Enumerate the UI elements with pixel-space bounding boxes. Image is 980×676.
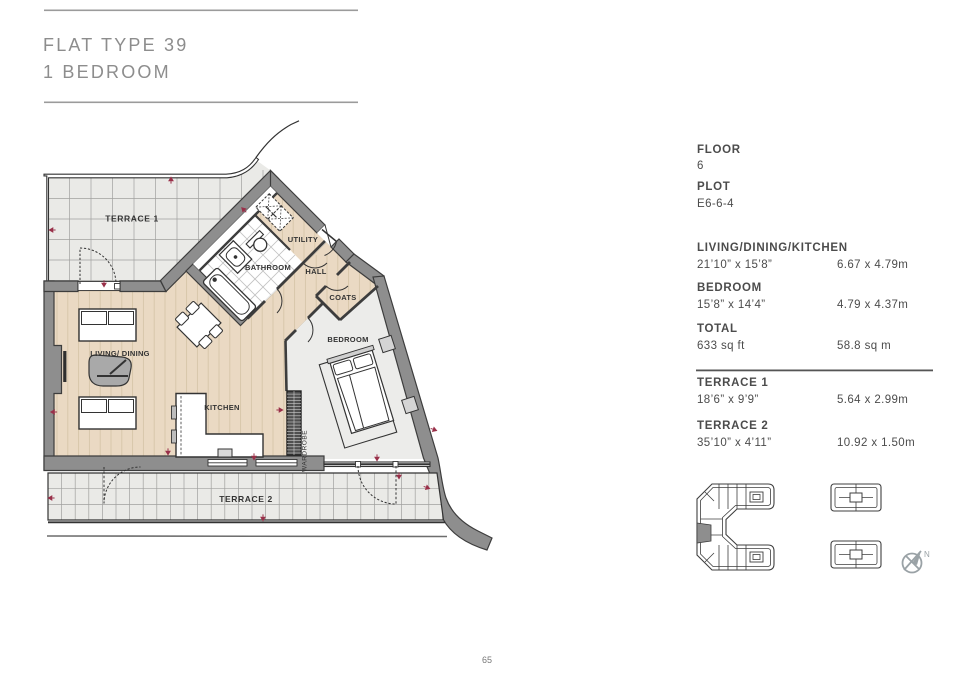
svg-text:KITCHEN: KITCHEN [204,403,239,412]
svg-text:BEDROOM: BEDROOM [697,282,762,294]
svg-text:TERRACE 2: TERRACE 2 [697,420,768,432]
svg-text:TERRACE 2: TERRACE 2 [219,494,273,504]
svg-text:LIVING/DINING/KITCHEN: LIVING/DINING/KITCHEN [697,242,848,254]
svg-text:WARDROBE: WARDROBE [302,430,309,472]
svg-text:TERRACE 1: TERRACE 1 [697,377,768,389]
svg-text:6.67 x 4.79m: 6.67 x 4.79m [837,259,908,271]
svg-text:PLOT: PLOT [697,181,730,193]
svg-text:21’10” x 15’8”: 21’10” x 15’8” [697,259,772,271]
svg-text:UTILITY: UTILITY [288,235,318,244]
svg-text:TOTAL: TOTAL [697,323,738,335]
svg-text:1 BEDROOM: 1 BEDROOM [43,62,171,82]
svg-text:BATHROOM: BATHROOM [245,263,291,272]
svg-text:4.79 x 4.37m: 4.79 x 4.37m [837,299,908,311]
svg-text:18’6” x 9’9”: 18’6” x 9’9” [697,394,759,406]
svg-text:FLAT TYPE 39: FLAT TYPE 39 [43,35,188,55]
svg-text:HALL: HALL [305,267,326,276]
svg-text:633 sq ft: 633 sq ft [697,340,745,352]
svg-text:5.64 x 2.99m: 5.64 x 2.99m [837,394,908,406]
svg-text:65: 65 [482,655,492,665]
svg-text:LIVING/ DINING: LIVING/ DINING [90,349,150,358]
svg-text:58.8 sq m: 58.8 sq m [837,340,891,352]
svg-text:BEDROOM: BEDROOM [327,335,368,344]
svg-text:TERRACE 1: TERRACE 1 [105,214,159,224]
svg-text:35’10” x 4’11”: 35’10” x 4’11” [697,437,771,449]
svg-text:N: N [924,550,930,559]
svg-text:10.92 x 1.50m: 10.92 x 1.50m [837,437,915,449]
svg-text:COATS: COATS [329,293,356,302]
svg-text:6: 6 [697,160,704,172]
svg-text:E6-6-4: E6-6-4 [697,198,734,210]
svg-text:FLOOR: FLOOR [697,144,741,156]
svg-text:15’8” x 14’4”: 15’8” x 14’4” [697,299,765,311]
